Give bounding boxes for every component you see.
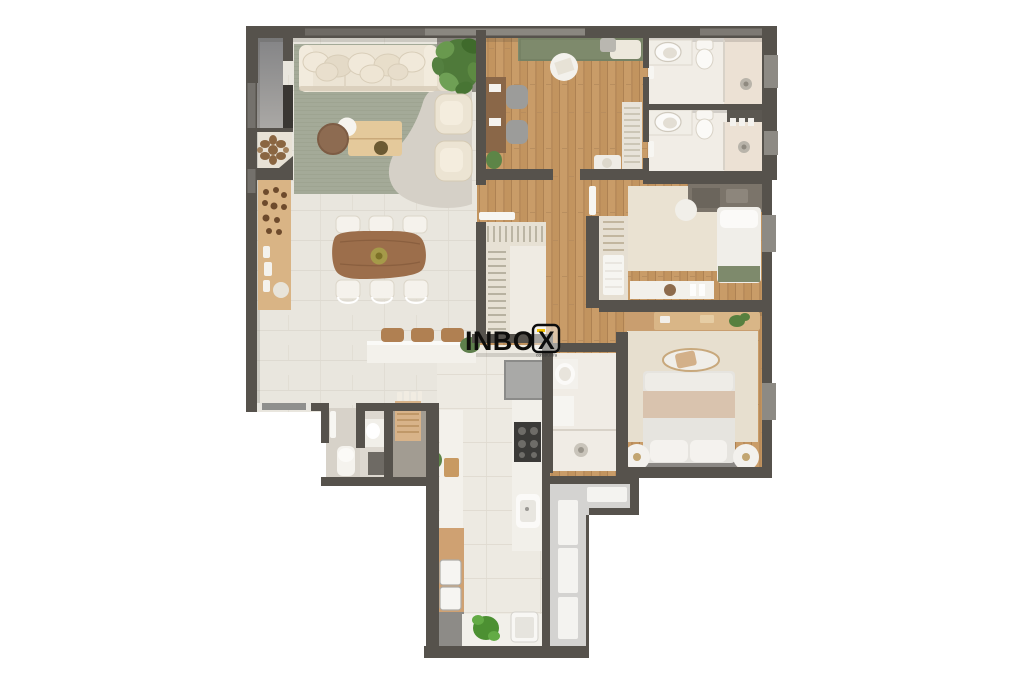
svg-text:construtora: construtora [536, 353, 558, 358]
svg-text:INBO: INBO [465, 326, 534, 356]
svg-text:X: X [538, 327, 555, 355]
